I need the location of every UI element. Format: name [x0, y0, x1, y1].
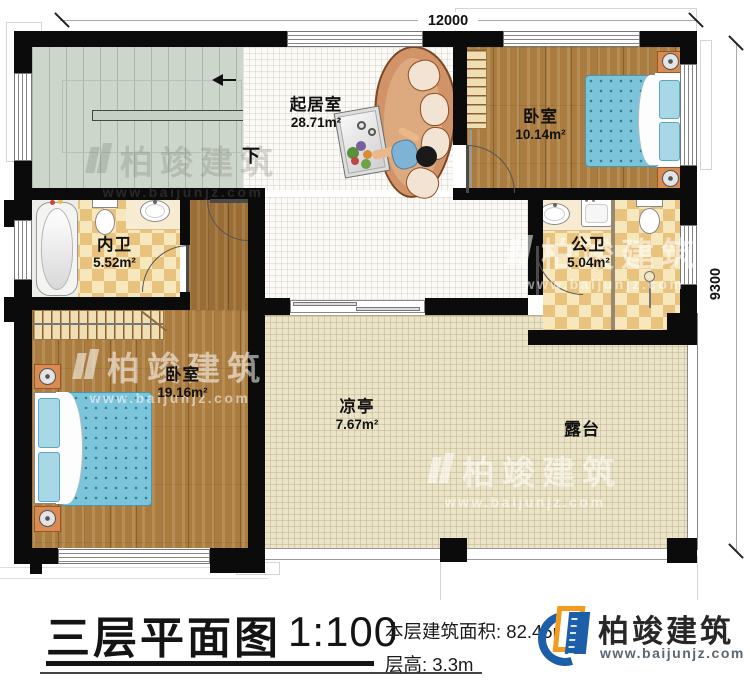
- bathtub-faucet-hot: [50, 200, 55, 205]
- wall-right: [680, 166, 697, 225]
- logo-building-blue-icon: [565, 612, 590, 654]
- logo-url-text: www.baijunjz.com: [600, 645, 745, 661]
- exterior-ground-line-2: [0, 578, 268, 579]
- wall-hall-left: [180, 197, 190, 245]
- floor-height-label: 层高:: [385, 654, 427, 675]
- window-right-bedroom: [680, 64, 697, 166]
- washing-machine-lid: [585, 204, 608, 223]
- dimension-label-top: 12000: [418, 12, 478, 30]
- toilet-bowl-inner: [95, 209, 115, 235]
- person-head: [416, 146, 437, 167]
- title-block: 三层平面图 1:100 本层建筑面积: 82.45m² 层高: 3.3m 柏竣建…: [0, 600, 750, 681]
- title-underline-thick: [46, 661, 374, 666]
- door-leaf-inner-bathroom: [186, 245, 189, 292]
- wall-pier: [4, 200, 14, 227]
- window-bottom-bedroom: [58, 549, 210, 564]
- room-area: 28.71m²: [266, 115, 366, 131]
- window-right-bathroom: [680, 225, 697, 285]
- sliding-door-panel: [356, 307, 420, 311]
- wall-bottom-corner: [210, 548, 265, 573]
- wall-bedroom-top-left: [453, 47, 467, 145]
- wall-left: [14, 280, 32, 564]
- window-left-bathroom: [14, 220, 32, 280]
- flower-leaf: [361, 159, 371, 169]
- room-area: 7.67m²: [306, 417, 408, 433]
- window-left-stair: [14, 73, 32, 161]
- window-top-bedroom: [503, 31, 640, 47]
- building-area-label: 本层建筑面积:: [385, 621, 501, 642]
- wall-left: [14, 31, 32, 73]
- wall-pier: [4, 297, 14, 322]
- floor-height-line: 层高: 3.3m: [385, 651, 473, 677]
- nightstand-lamp: [39, 368, 56, 385]
- room-name: 公卫: [536, 236, 641, 255]
- door-leaf-hallway: [210, 199, 248, 203]
- room-label-bedroom-top: 卧室 10.14m²: [488, 108, 593, 143]
- sink-faucet-dot: [153, 200, 157, 204]
- room-label-public-bathroom: 公卫 5.04m²: [536, 236, 641, 271]
- door-leaf-bedroom-top: [466, 145, 469, 193]
- room-label-pavilion: 凉亭 7.67m²: [306, 398, 408, 433]
- room-label-inner-bathroom: 内卫 5.52m²: [62, 236, 167, 271]
- room-name: 内卫: [62, 236, 167, 255]
- terrace-pillar: [667, 538, 697, 563]
- staircase-handrail: [92, 110, 244, 121]
- table-cup: [368, 128, 376, 136]
- nightstand-lamp: [39, 510, 56, 527]
- room-name: 卧室: [130, 366, 235, 385]
- floor-height-value: 3.3m: [432, 654, 473, 675]
- wall-pavilion-top: [425, 298, 528, 315]
- sink-basin: [145, 204, 165, 218]
- room-label-terrace: 露台: [534, 420, 630, 440]
- stair-direction-arrow-head: [212, 74, 223, 86]
- room-area: 19.16m²: [130, 385, 235, 401]
- sliding-door-panel: [293, 302, 357, 306]
- window-top-living: [287, 31, 423, 47]
- room-area: 5.52m²: [62, 255, 167, 271]
- exterior-line-right: [700, 40, 712, 170]
- wall-top-left: [14, 31, 287, 47]
- bed-blanket-top: [638, 75, 659, 165]
- sink-faucet-dot-public: [553, 203, 557, 207]
- dimension-line-right: [736, 44, 737, 552]
- nightstand-lamp: [662, 170, 679, 187]
- wall-central-vertical: [248, 188, 265, 564]
- plan-title: 三层平面图: [46, 602, 281, 666]
- terrace-bottom-band: [263, 548, 697, 560]
- terrace-pillar: [440, 538, 467, 562]
- nightstand-lamp: [662, 53, 679, 70]
- bed-pillow: [38, 452, 60, 502]
- room-name: 露台: [534, 420, 630, 440]
- room-name: 起居室: [266, 96, 366, 115]
- wall-inner-bath-bottom: [14, 297, 190, 310]
- room-name: 卧室: [488, 108, 593, 127]
- stair-down-label: 下: [242, 142, 272, 168]
- bed-pillow: [659, 80, 680, 119]
- wall-right: [680, 31, 697, 64]
- room-name: 凉亭: [306, 398, 408, 417]
- living-room-floor-lower: [263, 197, 528, 303]
- dimension-line-top: [60, 20, 698, 21]
- dimension-label-right: 9300: [706, 252, 726, 316]
- terrace-pillar: [667, 313, 697, 340]
- bed-pillow: [38, 398, 60, 448]
- floor-drain: [644, 271, 655, 282]
- flower-bloom: [351, 157, 359, 165]
- room-label-living: 起居室 28.71m²: [266, 96, 366, 131]
- bed-pillow: [659, 122, 680, 161]
- wall-top-middle: [423, 31, 503, 47]
- wall-bottom-step: [30, 562, 42, 574]
- stair-direction-arrow-tail: [222, 79, 236, 81]
- room-area: 10.14m²: [488, 127, 593, 143]
- sink-basin-public: [544, 207, 565, 221]
- flower-bloom: [363, 150, 372, 159]
- floor-drain-stem: [649, 282, 651, 308]
- room-area: 5.04m²: [536, 255, 641, 271]
- terrace-right-railing: [687, 313, 698, 550]
- room-label-bedroom-bottom: 卧室 19.16m²: [130, 366, 235, 401]
- wall-pavilion-top: [248, 298, 290, 315]
- plan-scale: 1:100: [288, 608, 398, 656]
- floor-plan-page: 柏竣建筑 www.baijunjz.com 柏竣建筑 www.baijunjz.…: [0, 0, 750, 681]
- toilet-bowl-public: [639, 208, 660, 234]
